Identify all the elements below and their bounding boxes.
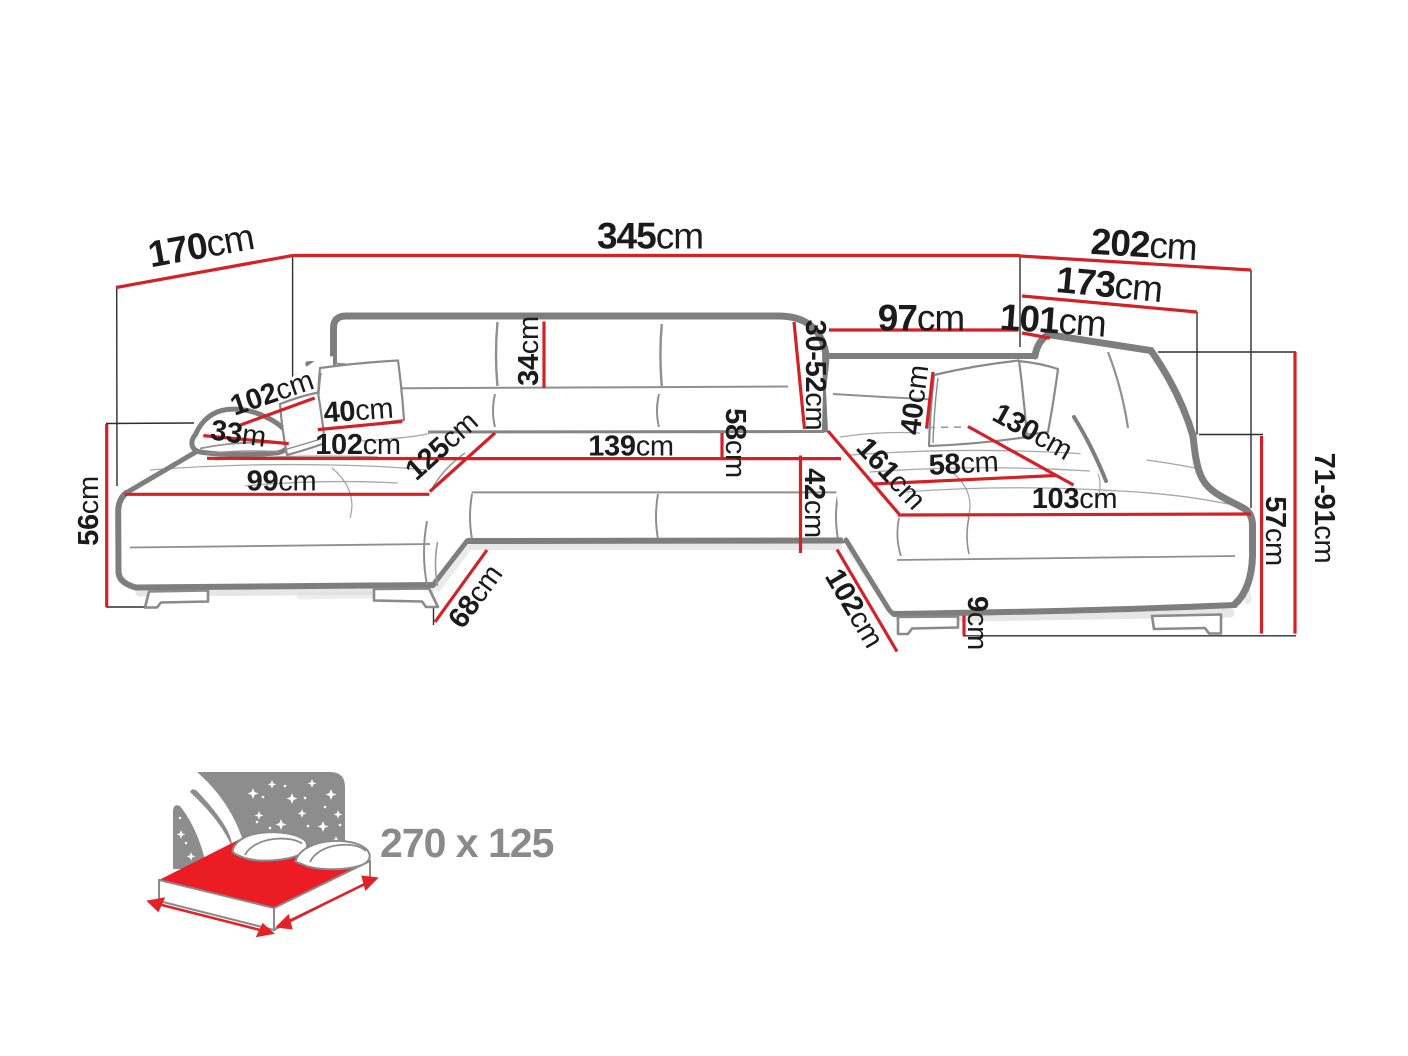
svg-text:58cm: 58cm (928, 446, 999, 482)
svg-text:57cm: 57cm (1259, 496, 1291, 566)
svg-text:102cm: 102cm (315, 429, 401, 461)
svg-text:99cm: 99cm (247, 466, 317, 498)
svg-text:40cm: 40cm (322, 393, 394, 430)
svg-text:9cm: 9cm (961, 596, 993, 650)
svg-text:34cm: 34cm (513, 316, 545, 386)
svg-text:101cm: 101cm (999, 296, 1108, 344)
svg-text:58cm: 58cm (719, 408, 751, 478)
svg-text:30-52cm: 30-52cm (799, 320, 831, 431)
svg-text:71-91cm: 71-91cm (1308, 453, 1340, 564)
svg-text:103cm: 103cm (1032, 483, 1118, 515)
svg-text:202cm: 202cm (1090, 221, 1198, 268)
svg-text:42cm: 42cm (798, 468, 830, 538)
svg-text:345cm: 345cm (597, 216, 703, 257)
svg-text:56cm: 56cm (73, 476, 105, 546)
svg-text:270 x 125: 270 x 125 (380, 820, 554, 866)
svg-text:97cm: 97cm (878, 298, 964, 339)
svg-text:139cm: 139cm (588, 431, 674, 463)
